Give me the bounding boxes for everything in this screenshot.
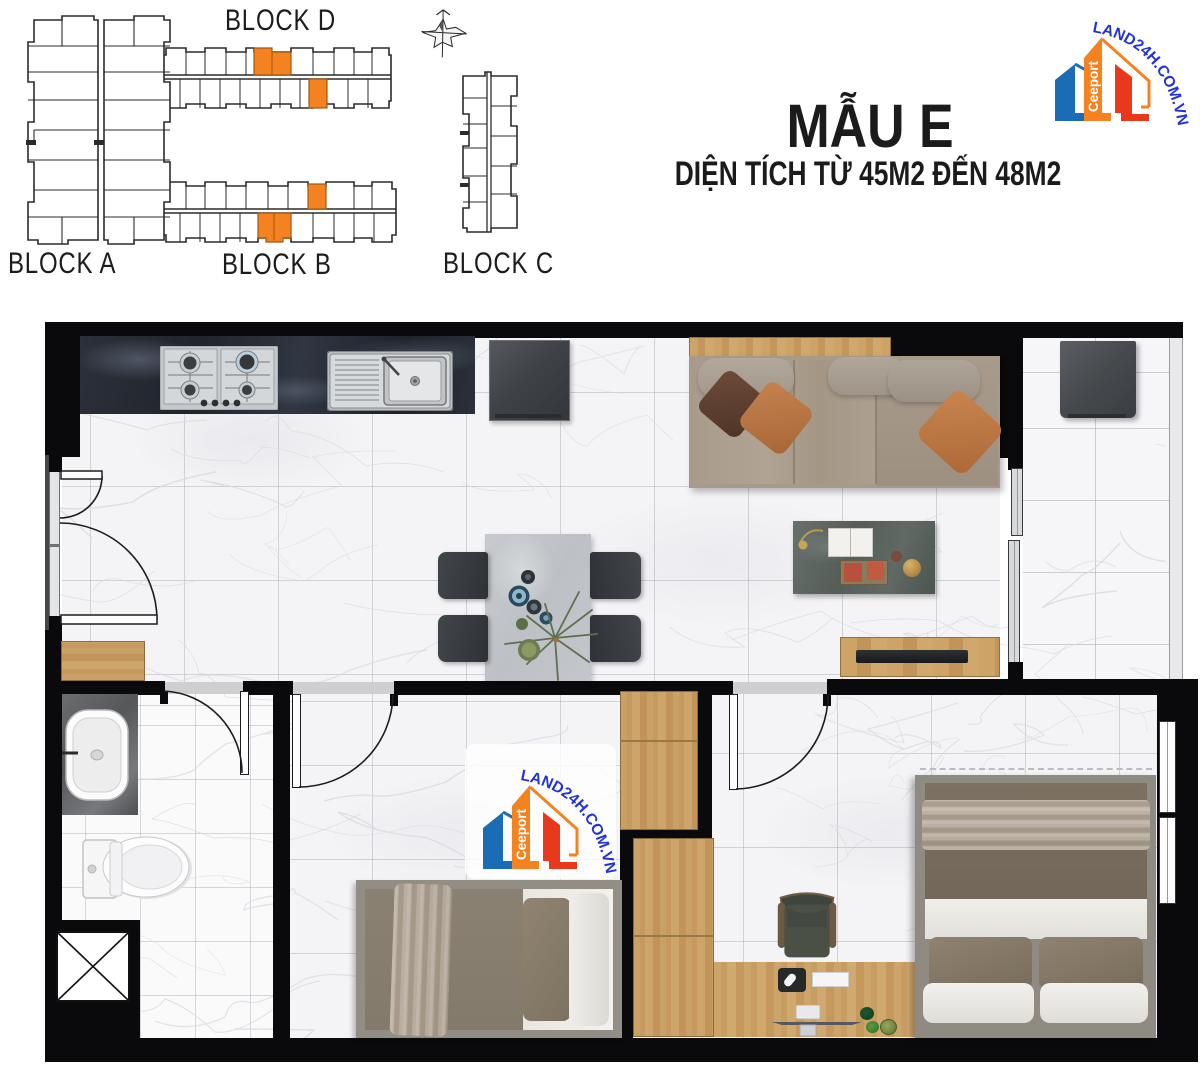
svg-text:Ceeport: Ceeport — [514, 808, 529, 860]
svg-text:Ceeport: Ceeport — [1086, 60, 1101, 112]
